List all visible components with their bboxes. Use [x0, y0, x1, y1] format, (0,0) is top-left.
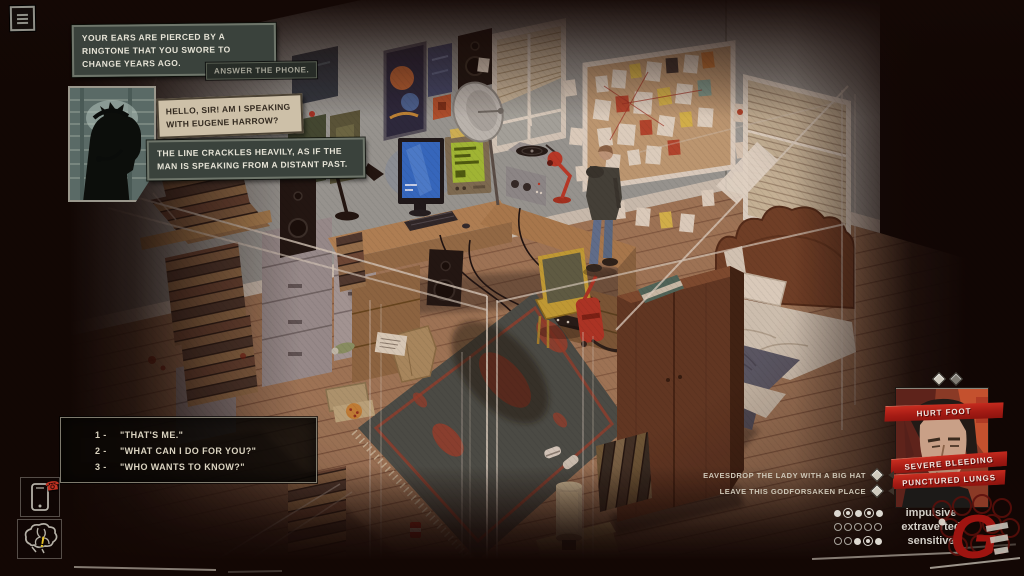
trait-dot-empty — [834, 537, 842, 545]
diamond-icon — [870, 468, 884, 482]
arrow-left-icon — [888, 471, 894, 479]
task-leave-place[interactable]: LEAVE THIS GODFORSAKEN PLACE — [556, 486, 894, 496]
option-text: "THAT'S ME." — [120, 430, 183, 440]
diamond-icon — [870, 484, 884, 498]
task-label: LEAVE THIS GODFORSAKEN PLACE — [720, 487, 866, 496]
arrow-left-icon — [888, 487, 894, 495]
trait-dot-filled — [876, 510, 883, 517]
option-number: 2 - — [95, 446, 113, 456]
trait-dot-empty — [874, 523, 882, 531]
status-diamond-toggles[interactable] — [934, 374, 961, 384]
answer-phone-button[interactable]: ANSWER THE PHONE. — [206, 61, 317, 80]
desk-books — [336, 232, 366, 292]
trait-dot-empty — [854, 523, 862, 531]
option-number: 1 - — [95, 430, 113, 440]
caller-portrait — [68, 86, 156, 202]
trait-dot-empty — [834, 523, 842, 531]
trait-dot-selected — [864, 508, 874, 518]
option-number: 3 - — [95, 462, 113, 472]
paper-note — [375, 332, 407, 356]
trait-dot-empty — [844, 537, 852, 545]
incoming-call-icon: ☎ — [44, 478, 61, 494]
option-text: "WHAT CAN I DO FOR YOU?" — [120, 446, 256, 456]
trait-dots — [834, 523, 892, 531]
task-eavesdrop[interactable]: EAVESDROP THE LADY WITH A BIG HAT — [556, 470, 894, 480]
cabinet-speaker — [280, 170, 316, 258]
menu-button[interactable] — [10, 6, 35, 31]
dialogue-option-3[interactable]: 3 - "WHO WANTS TO KNOW?" — [95, 459, 316, 475]
cola-can — [410, 522, 421, 538]
trait-dot-filled — [854, 538, 861, 545]
dialogue-options-panel: 1 - "THAT'S ME." 2 - "WHAT CAN I DO FOR … — [60, 417, 317, 483]
trait-dot-filled — [834, 510, 841, 517]
dialogue-option-2[interactable]: 2 - "WHAT CAN I DO FOR YOU?" — [95, 443, 316, 459]
narration-crackle-box: THE LINE CRACKLES HEAVILY, AS IF THE MAN… — [147, 137, 366, 180]
corkboard[interactable] — [585, 43, 733, 189]
back-window — [492, 18, 566, 154]
option-text: "WHO WANTS TO KNOW?" — [120, 462, 245, 472]
caller-dialogue-box: HELLO, SIR! AM I SPEAKING WITH EUGENE HA… — [156, 93, 303, 138]
caller-silhouette — [70, 88, 154, 200]
game-screen: YOUR EARS ARE PIERCED BY A RINGTONE THAT… — [0, 0, 1024, 576]
task-label: EAVESDROP THE LADY WITH A BIG HAT — [703, 471, 866, 480]
gamestar-logo-watermark: G — [928, 490, 1024, 576]
dialogue-option-1[interactable]: 1 - "THAT'S ME." — [95, 427, 316, 443]
trait-dots — [834, 508, 892, 518]
trait-dots — [834, 536, 892, 546]
diamond-icon-dark — [949, 372, 963, 386]
trait-dot-filled — [855, 510, 862, 517]
trait-dot-empty — [864, 523, 872, 531]
trait-dot-empty — [844, 523, 852, 531]
trait-dot-selected — [863, 536, 873, 546]
hamburger-menu-icon — [17, 13, 28, 15]
trait-dot-selected — [843, 508, 853, 518]
diamond-icon — [932, 372, 946, 386]
trait-dot-filled — [875, 538, 882, 545]
